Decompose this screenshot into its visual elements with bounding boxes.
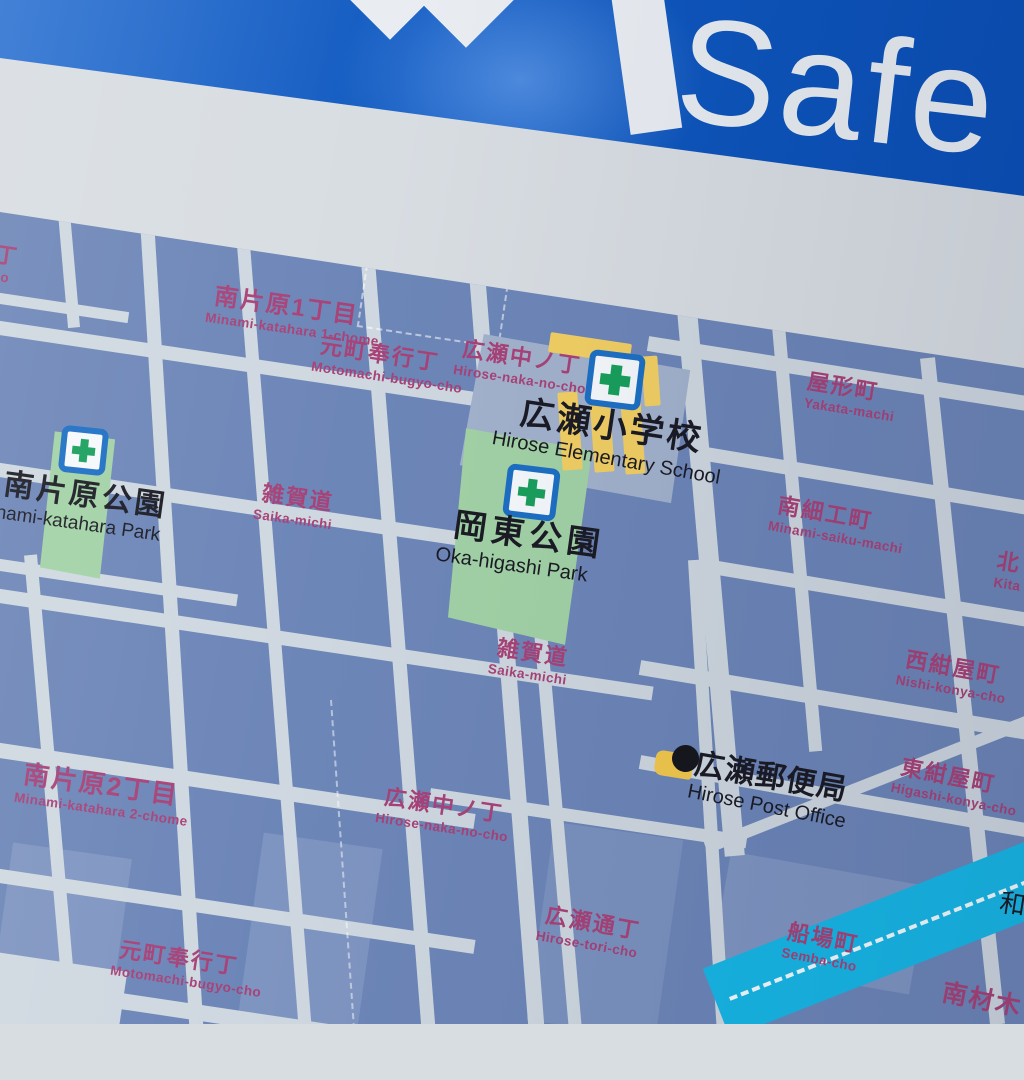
town-label: 西紺屋町 Nishi-konya-cho <box>895 641 1012 707</box>
town-label: 広瀬中ノ丁 Hirose-naka-no-cho <box>374 778 513 844</box>
road <box>699 558 1024 631</box>
sign-header-banner: Safe <box>0 0 1024 250</box>
facility-label-park-minami: 南片原公園 nami-katahara Park <box>0 459 171 547</box>
banner-title: Safe <box>668 0 1006 190</box>
town-kanji: 北 <box>995 543 1024 579</box>
town-romaji: Kita <box>992 575 1021 594</box>
cross-bar <box>78 438 89 463</box>
town-label: 南片原2丁目 Minami-katahara 2-chome <box>13 753 194 829</box>
cross-bar <box>608 365 622 396</box>
town-label-fragment: 丁 ho <box>0 237 21 287</box>
town-kanji: 丁 <box>0 237 21 272</box>
town-label-fragment: 南材木 <box>939 973 1024 1024</box>
town-label-fragment: 北 Kita <box>992 543 1024 594</box>
town-label: 屋形町 Yakata-machi <box>797 363 900 425</box>
town-label: 南細工町 Minami-saiku-machi <box>767 487 909 557</box>
river-name-fragment: 和 <box>997 882 1024 923</box>
town-kanji: 南材木 <box>939 973 1024 1024</box>
cross-bar <box>525 478 538 507</box>
road <box>0 950 127 1080</box>
